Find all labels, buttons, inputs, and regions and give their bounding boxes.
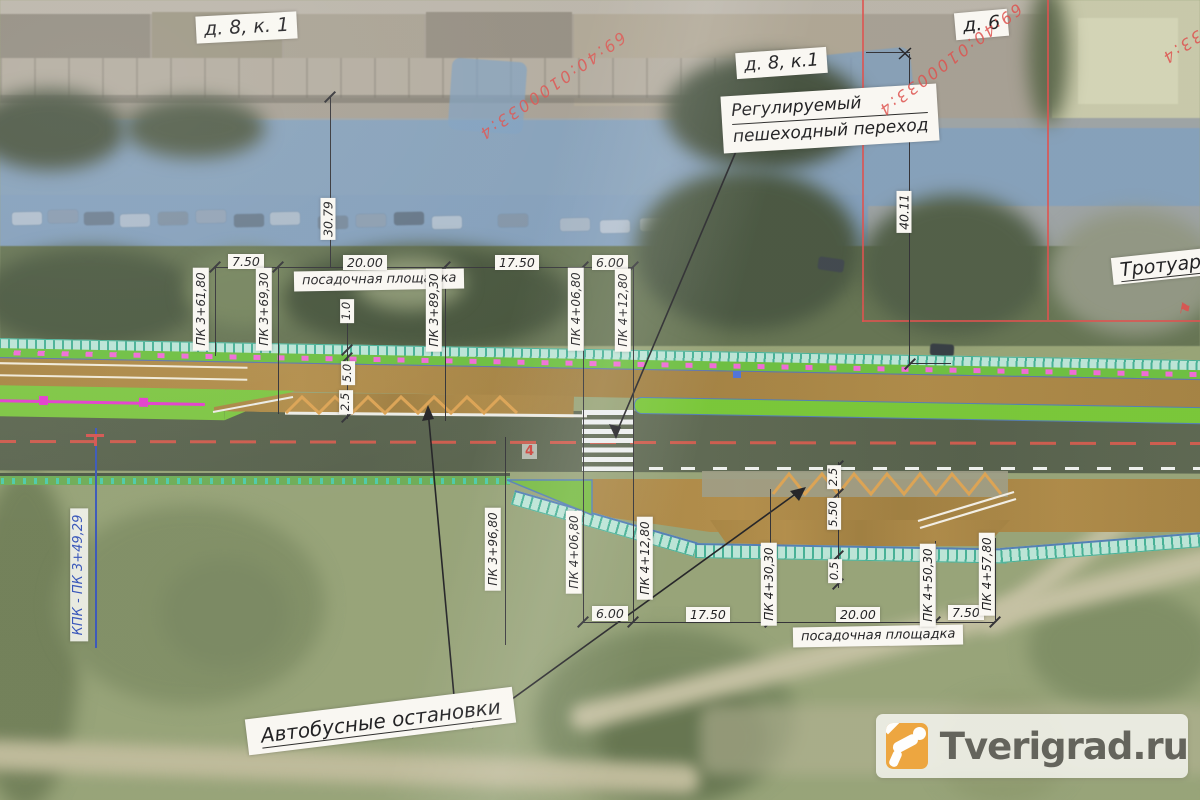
- station-label: ПК 4+06,80: [568, 267, 584, 350]
- dim-value-vertical: 0.5: [828, 559, 842, 583]
- station-label: ПК 3+89,30: [426, 268, 442, 351]
- station-label: ПК 4+30,30: [761, 542, 777, 625]
- runner-leg: [888, 749, 903, 768]
- cadastral-line: [862, 320, 1200, 322]
- tree: [635, 170, 860, 330]
- extension-line: [866, 52, 910, 53]
- logo-notch: [886, 723, 899, 734]
- road-edge-green-teal: [0, 476, 510, 485]
- station-label: ПК 4+50,30: [920, 543, 936, 626]
- cadastral-line: [862, 0, 864, 322]
- station-label: ПК 4+12,80: [637, 516, 653, 599]
- station-label: ПК 3+69,30: [256, 267, 272, 350]
- watermark-text: Tverigrad.ru: [940, 725, 1188, 768]
- station-line: [505, 437, 506, 645]
- dim-value: 6.00: [592, 606, 628, 621]
- plan-photo-canvas: ⚑ д. 8, к. 1 д. 8, к.1 д. 6 Регулируемый…: [0, 0, 1200, 800]
- dim-value: 20.00: [343, 255, 387, 270]
- dim-value-vertical: 5.0: [341, 361, 355, 385]
- utility-marker: [733, 371, 741, 378]
- bay-asphalt-pale: [702, 471, 1008, 497]
- building-roof: [284, 14, 424, 58]
- building-roof: [426, 12, 572, 60]
- kpk-axis-label: КПК - ПК 3+49,29: [70, 509, 88, 642]
- dim-value: 17.50: [495, 255, 539, 270]
- kpk-axis-line: [95, 428, 97, 648]
- station-label: ПК 4+06,80: [566, 510, 582, 593]
- tree: [125, 98, 265, 158]
- station-line: [633, 267, 634, 623]
- extension-line: [909, 363, 951, 364]
- watermark: Tverigrad.ru: [876, 714, 1188, 778]
- station-label: ПК 3+61,80: [193, 267, 209, 350]
- station-label: ПК 3+96,80: [485, 507, 501, 590]
- bus-bay-pavement-lower: [710, 520, 1010, 546]
- building-roof: [0, 14, 150, 60]
- road-edge-dashed-white: [585, 467, 1200, 470]
- dim-value-vertical: 5.50: [827, 498, 841, 530]
- crosswalk-zebra: [582, 410, 634, 471]
- station-line: [215, 267, 216, 356]
- station-line: [995, 538, 996, 620]
- grass-shade: [160, 558, 290, 668]
- cadastral-line: [1047, 0, 1049, 320]
- dim-value-vertical: 2.5: [827, 465, 841, 489]
- house-label: д. 8, к. 1: [195, 11, 297, 43]
- dim-value-vertical: 30.79: [321, 198, 336, 240]
- dim-value-vertical: 2.5: [339, 390, 353, 414]
- station-label: ПК 4+57,80: [979, 532, 995, 615]
- dim-value-vertical: 1.0: [340, 299, 354, 323]
- dim-value: 20.00: [836, 607, 880, 622]
- tree: [862, 195, 1047, 335]
- dim-value: 17.50: [686, 607, 730, 622]
- tverigrad-logo-icon: [886, 723, 928, 769]
- dim-line-30-79: [330, 96, 331, 267]
- station-line: [445, 267, 446, 421]
- centerline-marker-4: 4: [522, 444, 537, 459]
- landing-area-note-bottom: посадочная площадка: [793, 625, 964, 648]
- centerline-tee: [94, 434, 97, 446]
- station-line: [278, 267, 279, 414]
- dim-value-vertical: 40.11: [897, 191, 912, 233]
- station-label: ПК 4+12,80: [615, 268, 631, 351]
